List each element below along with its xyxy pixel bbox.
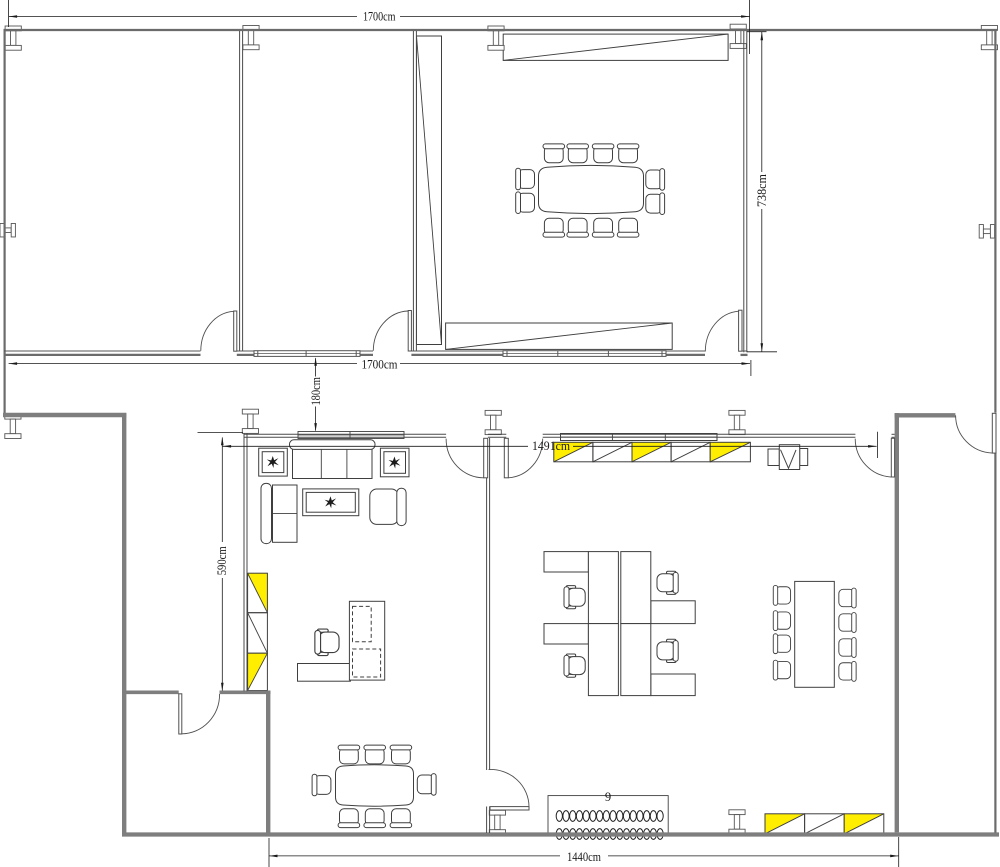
svg-text:1700cm: 1700cm [362,358,398,372]
svg-text:590cm: 590cm [215,546,229,575]
svg-text:9: 9 [605,790,611,804]
svg-text:1700cm: 1700cm [363,10,396,24]
svg-text:738cm: 738cm [755,174,769,207]
svg-text:1440cm: 1440cm [567,850,601,864]
svg-text:180cm: 180cm [309,377,323,406]
svg-text:1491cm: 1491cm [532,439,570,453]
